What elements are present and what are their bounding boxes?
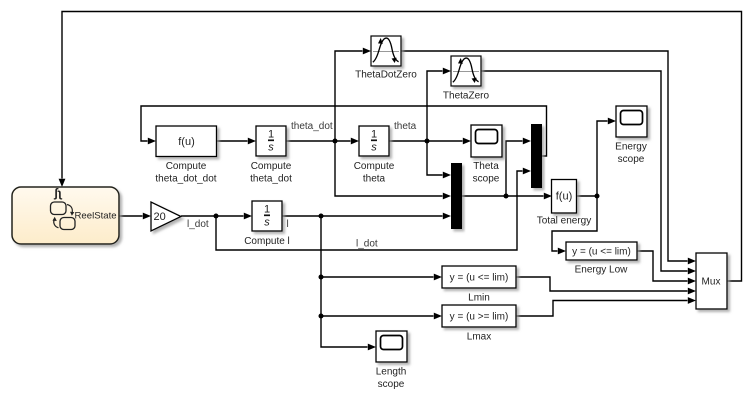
svg-text:theta_dot_dot: theta_dot_dot xyxy=(155,174,216,185)
svg-text:theta: theta xyxy=(394,121,417,132)
svg-text:Total energy: Total energy xyxy=(537,216,591,227)
svg-text:l_dot: l_dot xyxy=(187,219,209,230)
svg-text:l: l xyxy=(287,219,289,230)
svg-text:Compute l: Compute l xyxy=(244,236,290,247)
svg-text:Theta: Theta xyxy=(473,161,499,172)
svg-text:Energy Low: Energy Low xyxy=(575,265,629,276)
svg-text:y = (u <= lim): y = (u <= lim) xyxy=(450,273,509,284)
svg-text:ReelState: ReelState xyxy=(75,211,117,222)
svg-text:ThetaZero: ThetaZero xyxy=(443,91,490,102)
svg-text:s: s xyxy=(371,142,377,154)
svg-text:y = (u >= lim): y = (u >= lim) xyxy=(450,312,509,323)
svg-text:s: s xyxy=(264,217,270,229)
svg-text:Compute: Compute xyxy=(354,161,395,172)
svg-text:scope: scope xyxy=(473,174,500,185)
svg-text:Compute: Compute xyxy=(166,161,207,172)
svg-text:Mux: Mux xyxy=(702,277,721,288)
svg-text:y = (u <= lim): y = (u <= lim) xyxy=(572,247,631,258)
svg-text:scope: scope xyxy=(378,379,405,390)
svg-text:theta: theta xyxy=(363,174,386,185)
svg-text:ThetaDotZero: ThetaDotZero xyxy=(355,70,417,81)
svg-text:Length: Length xyxy=(376,367,407,378)
svg-text:1: 1 xyxy=(268,128,274,140)
svg-text:1: 1 xyxy=(264,203,270,215)
svg-text:Energy: Energy xyxy=(615,142,647,153)
svg-text:Lmax: Lmax xyxy=(467,332,491,343)
svg-text:1: 1 xyxy=(371,128,377,140)
svg-text:Lmin: Lmin xyxy=(468,293,490,304)
svg-text:s: s xyxy=(268,142,274,154)
svg-text:theta_dot: theta_dot xyxy=(250,174,292,185)
svg-text:20: 20 xyxy=(154,211,166,223)
svg-text:theta_dot: theta_dot xyxy=(291,121,333,132)
svg-text:scope: scope xyxy=(618,154,645,165)
svg-text:l_dot: l_dot xyxy=(356,239,378,250)
svg-text:Compute: Compute xyxy=(251,161,292,172)
svg-text:f(u): f(u) xyxy=(556,191,573,203)
svg-text:ʃʅ: ʃʅ xyxy=(53,186,63,200)
svg-text:f(u): f(u) xyxy=(178,136,195,148)
